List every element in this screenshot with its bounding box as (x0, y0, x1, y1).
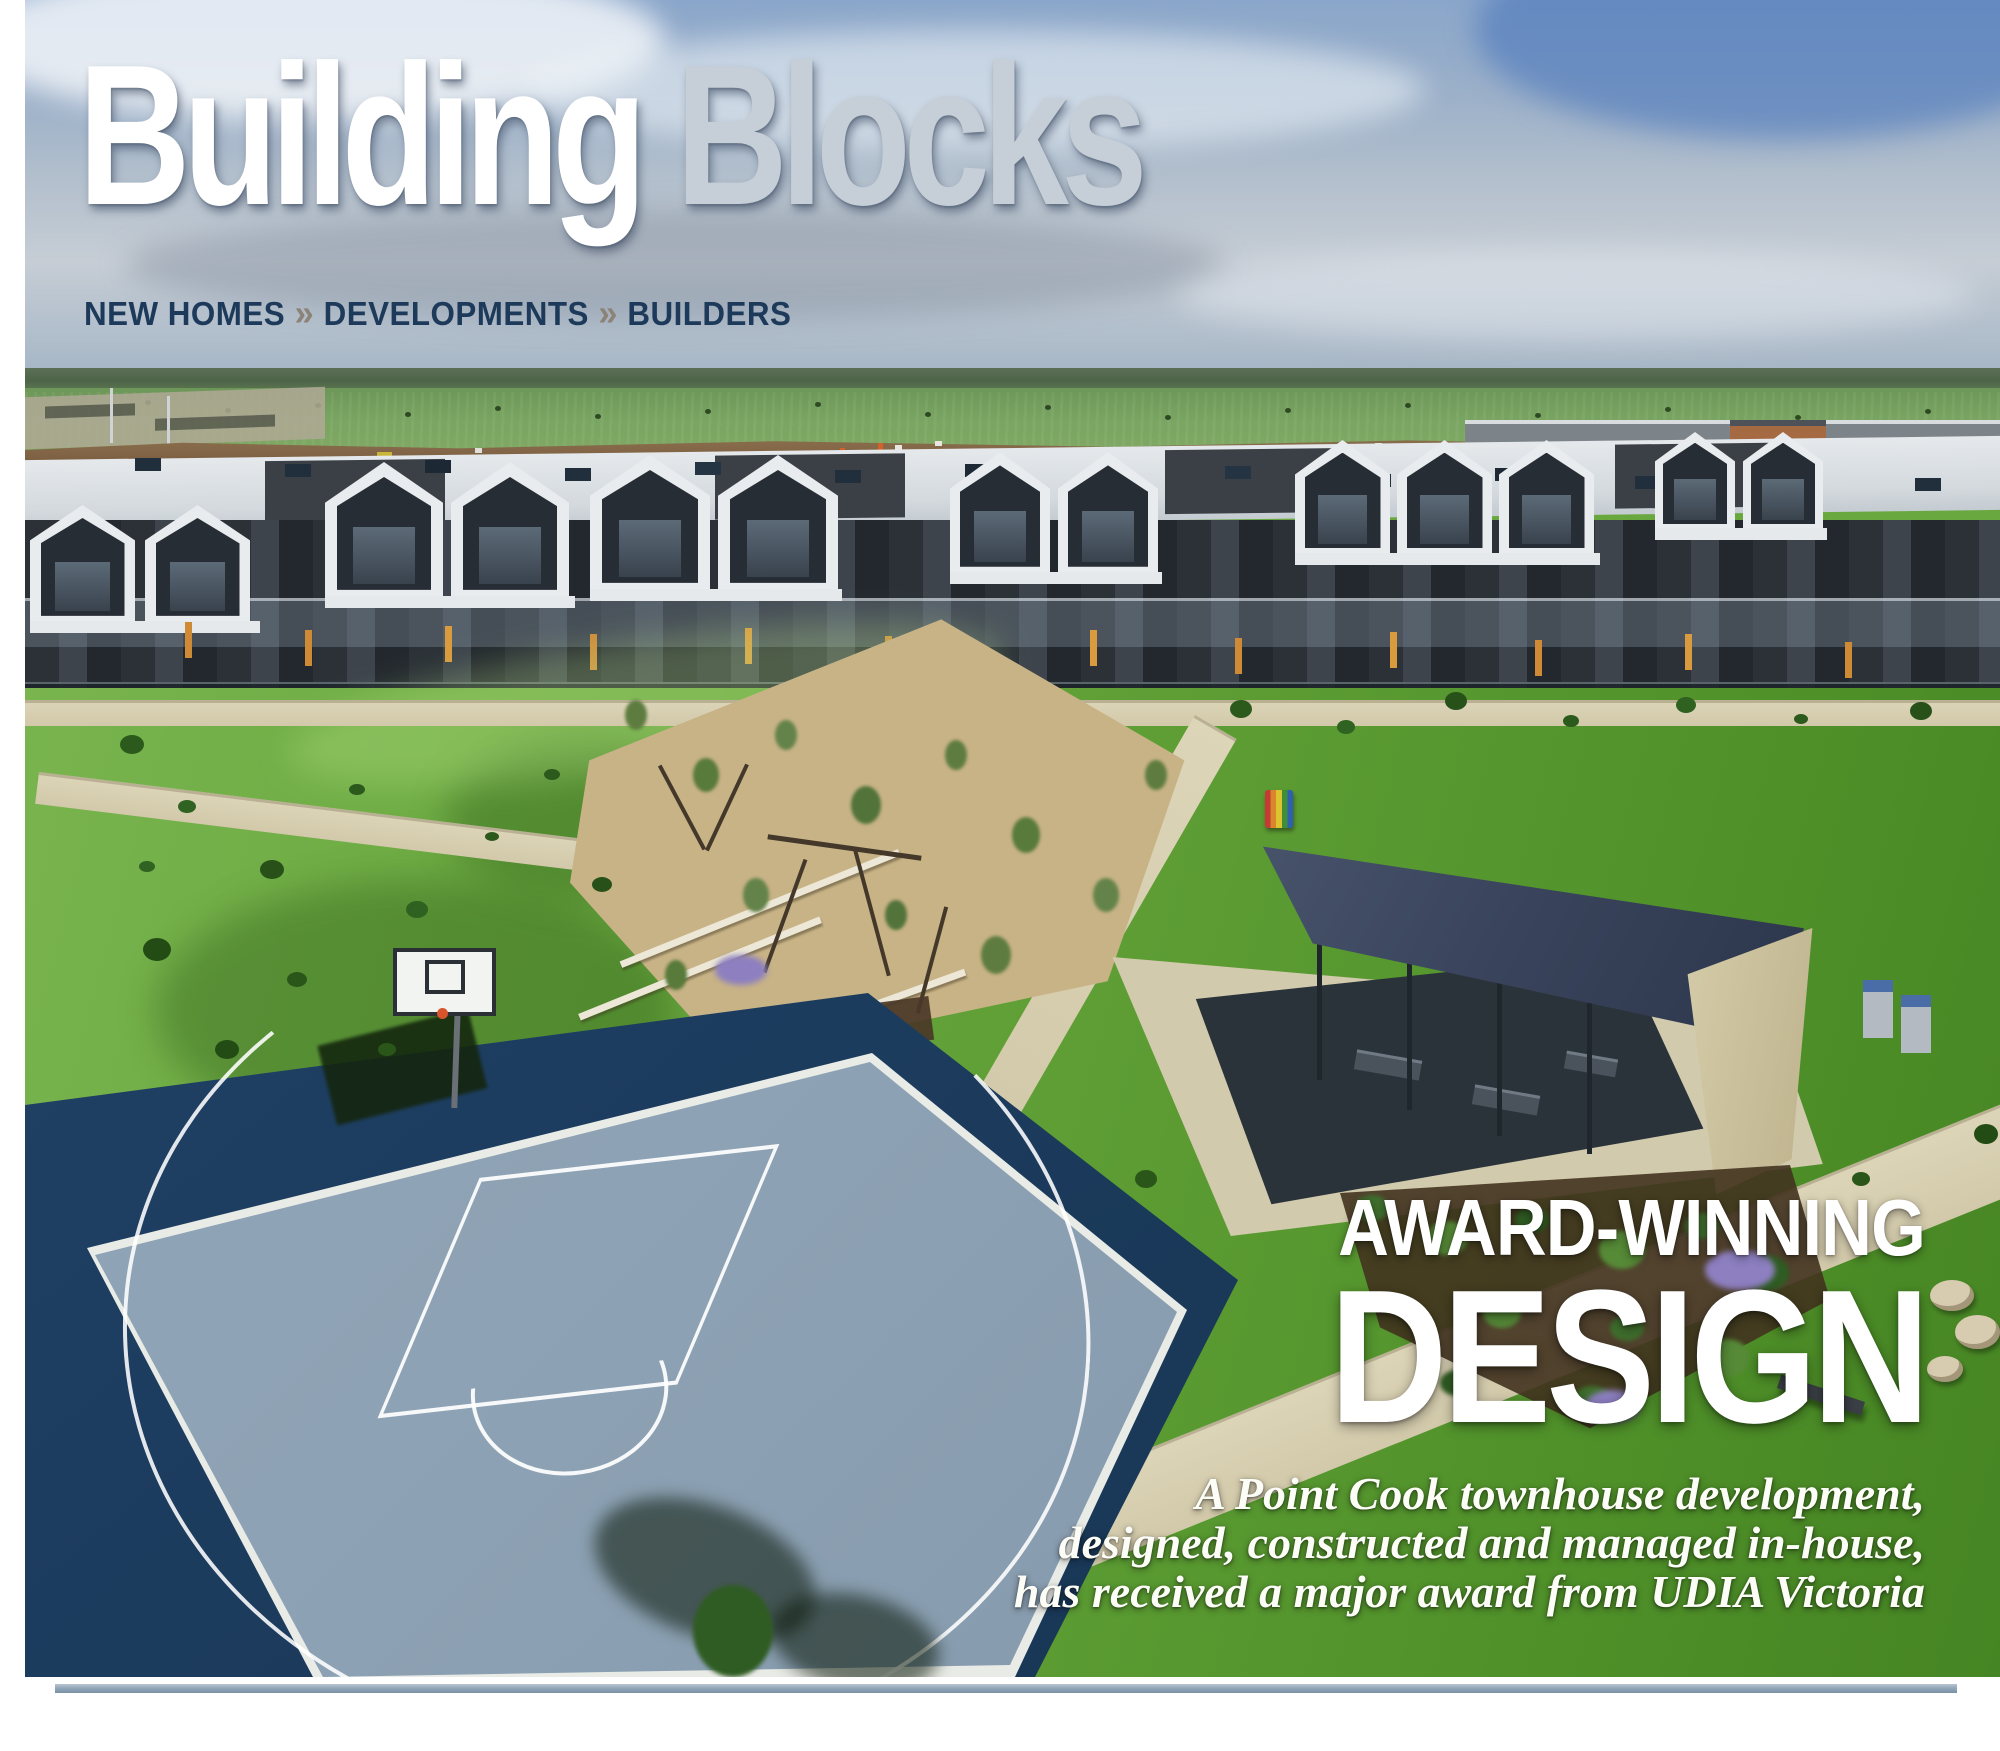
park-bin (1901, 995, 1931, 1053)
house-lot (155, 415, 275, 431)
masthead-title-primary: Building (78, 24, 639, 247)
townhouse-gable-cluster (30, 505, 260, 690)
landscape-rock (1930, 1280, 1974, 1311)
chevron-separator-icon: » (598, 292, 618, 333)
basketball-rim (437, 1008, 448, 1019)
category-builders: BUILDERS (627, 295, 791, 332)
solar-panels (135, 458, 161, 471)
story-headline: DESIGN (721, 1270, 1925, 1445)
story-overlay: AWARD-WINNING DESIGN A Point Cook townho… (525, 1188, 1925, 1616)
park-trees-left (120, 735, 144, 754)
category-developments: DEVELOPMENTS (324, 295, 589, 332)
dek-line: has received a major award from UDIA Vic… (525, 1567, 1925, 1616)
category-strip: NEW HOMES»DEVELOPMENTS»BUILDERS (84, 292, 791, 334)
backboard-inner-square (425, 960, 465, 994)
park-trees-right (1230, 700, 1252, 718)
townhouse-gable-cluster (1295, 440, 1600, 655)
masthead-title-secondary: Blocks (675, 24, 1140, 247)
house-lot (45, 403, 135, 418)
park-bin (1863, 980, 1893, 1038)
landscape-rock (1927, 1356, 1963, 1382)
masthead-title: BuildingBlocks (78, 36, 1140, 236)
story-dek: A Point Cook townhouse development, desi… (525, 1469, 1925, 1617)
street-light-pole (110, 388, 113, 443)
townhouse-gable-cluster (1655, 432, 1827, 632)
pavilion-column (1317, 935, 1322, 1080)
magazine-page: BuildingBlocks NEW HOMES»DEVELOPMENTS»BU… (0, 0, 2000, 1751)
pavilion-column (1497, 980, 1502, 1136)
young-trees (625, 700, 647, 730)
footer-rule (55, 1684, 1957, 1693)
rainbow-play-column (1265, 790, 1293, 828)
pavilion-column (1587, 1002, 1592, 1154)
dek-line: designed, constructed and managed in-hou… (525, 1518, 1925, 1567)
street-light-pole (167, 396, 170, 444)
cloud (1175, 250, 1975, 340)
street-grid (25, 387, 325, 449)
cloud (1475, 0, 2000, 140)
dek-line: A Point Cook townhouse development, (525, 1469, 1925, 1518)
pavilion-column (1407, 958, 1412, 1110)
basketball-backboard (393, 948, 496, 1016)
category-new-homes: NEW HOMES (84, 295, 285, 332)
landscape-rock (1955, 1315, 2000, 1349)
door-accent-strips (185, 622, 192, 658)
chevron-separator-icon: » (295, 292, 315, 333)
